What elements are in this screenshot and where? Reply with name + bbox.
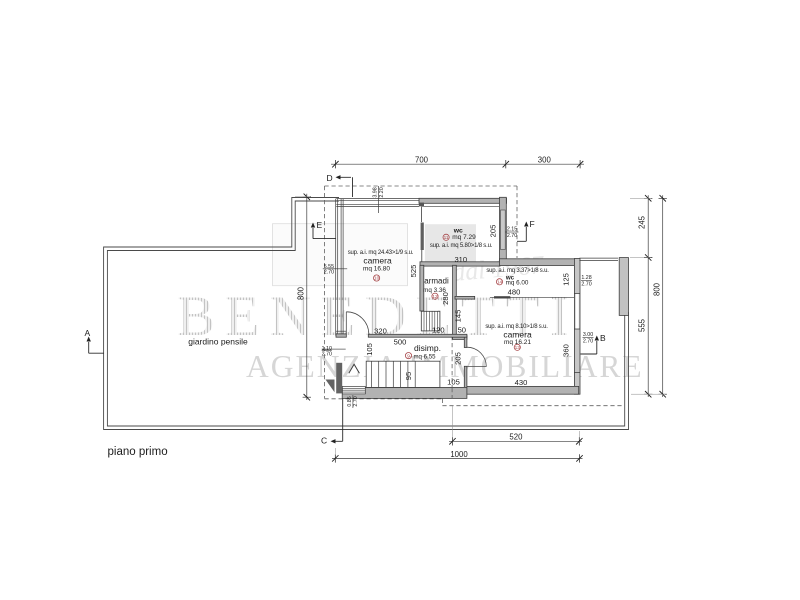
svg-text:300: 300 [538,156,552,165]
svg-text:320: 320 [374,326,387,335]
svg-text:9: 9 [407,353,410,359]
svg-text:2.70: 2.70 [507,233,517,239]
svg-text:14: 14 [497,280,503,286]
svg-text:mq 16.21: mq 16.21 [504,339,531,346]
svg-text:2.70: 2.70 [324,270,334,276]
svg-text:A: A [85,328,91,338]
svg-text:mq 16.80: mq 16.80 [363,265,390,272]
svg-text:245: 245 [638,215,647,229]
svg-text:105: 105 [447,378,460,387]
svg-text:armadi: armadi [424,277,449,286]
svg-text:sup. a.i. mq 5.80>1/8 s.u.: sup. a.i. mq 5.80>1/8 s.u. [430,243,493,249]
svg-text:145: 145 [454,310,463,323]
svg-text:B: B [600,333,606,343]
svg-text:525: 525 [409,265,418,278]
svg-text:2.70: 2.70 [581,282,591,288]
svg-text:2.15: 2.15 [507,227,517,233]
svg-text:2.70: 2.70 [322,352,332,358]
svg-text:13: 13 [515,345,521,351]
svg-text:E: E [317,220,323,230]
svg-text:205: 205 [489,225,498,238]
svg-text:1.28: 1.28 [581,275,591,281]
svg-text:10: 10 [374,276,380,282]
svg-text:520: 520 [509,433,523,442]
svg-text:430: 430 [515,378,528,387]
svg-text:310: 310 [454,255,467,264]
svg-text:C: C [321,436,327,446]
svg-text:50: 50 [458,326,466,335]
svg-text:360: 360 [562,344,571,357]
svg-text:2.20: 2.20 [379,187,385,197]
svg-text:mq 6.00: mq 6.00 [506,280,529,287]
svg-text:205: 205 [453,352,462,365]
svg-text:mq 3.36: mq 3.36 [423,287,446,294]
svg-text:800: 800 [653,282,662,296]
svg-text:500: 500 [394,338,407,347]
svg-text:piano primo: piano primo [108,446,168,458]
svg-text:280: 280 [441,292,450,305]
svg-text:camera: camera [363,256,392,266]
svg-text:480: 480 [508,288,521,297]
svg-text:700: 700 [415,156,429,165]
svg-text:12: 12 [432,294,438,300]
svg-text:3.98: 3.98 [373,187,379,197]
svg-text:105: 105 [365,343,374,356]
svg-text:giardino pensile: giardino pensile [188,337,248,347]
svg-text:555: 555 [638,318,647,332]
svg-text:3.00: 3.00 [583,332,593,338]
svg-text:mq 7.29: mq 7.29 [452,234,476,241]
svg-text:mq 6.55: mq 6.55 [413,354,436,361]
svg-text:800: 800 [297,286,306,300]
svg-text:2.70: 2.70 [353,396,359,406]
svg-text:1000: 1000 [450,450,468,459]
svg-text:D: D [327,173,333,183]
svg-text:11: 11 [444,235,449,241]
svg-text:F: F [530,219,535,229]
svg-text:sup. a.i. mq 3.37>1/8 s.u.: sup. a.i. mq 3.37>1/8 s.u. [486,268,549,274]
svg-text:120: 120 [432,326,445,335]
svg-text:125: 125 [562,273,571,286]
svg-text:2.70: 2.70 [583,339,593,345]
svg-text:95: 95 [404,372,413,380]
svg-text:disimp.: disimp. [414,343,441,353]
